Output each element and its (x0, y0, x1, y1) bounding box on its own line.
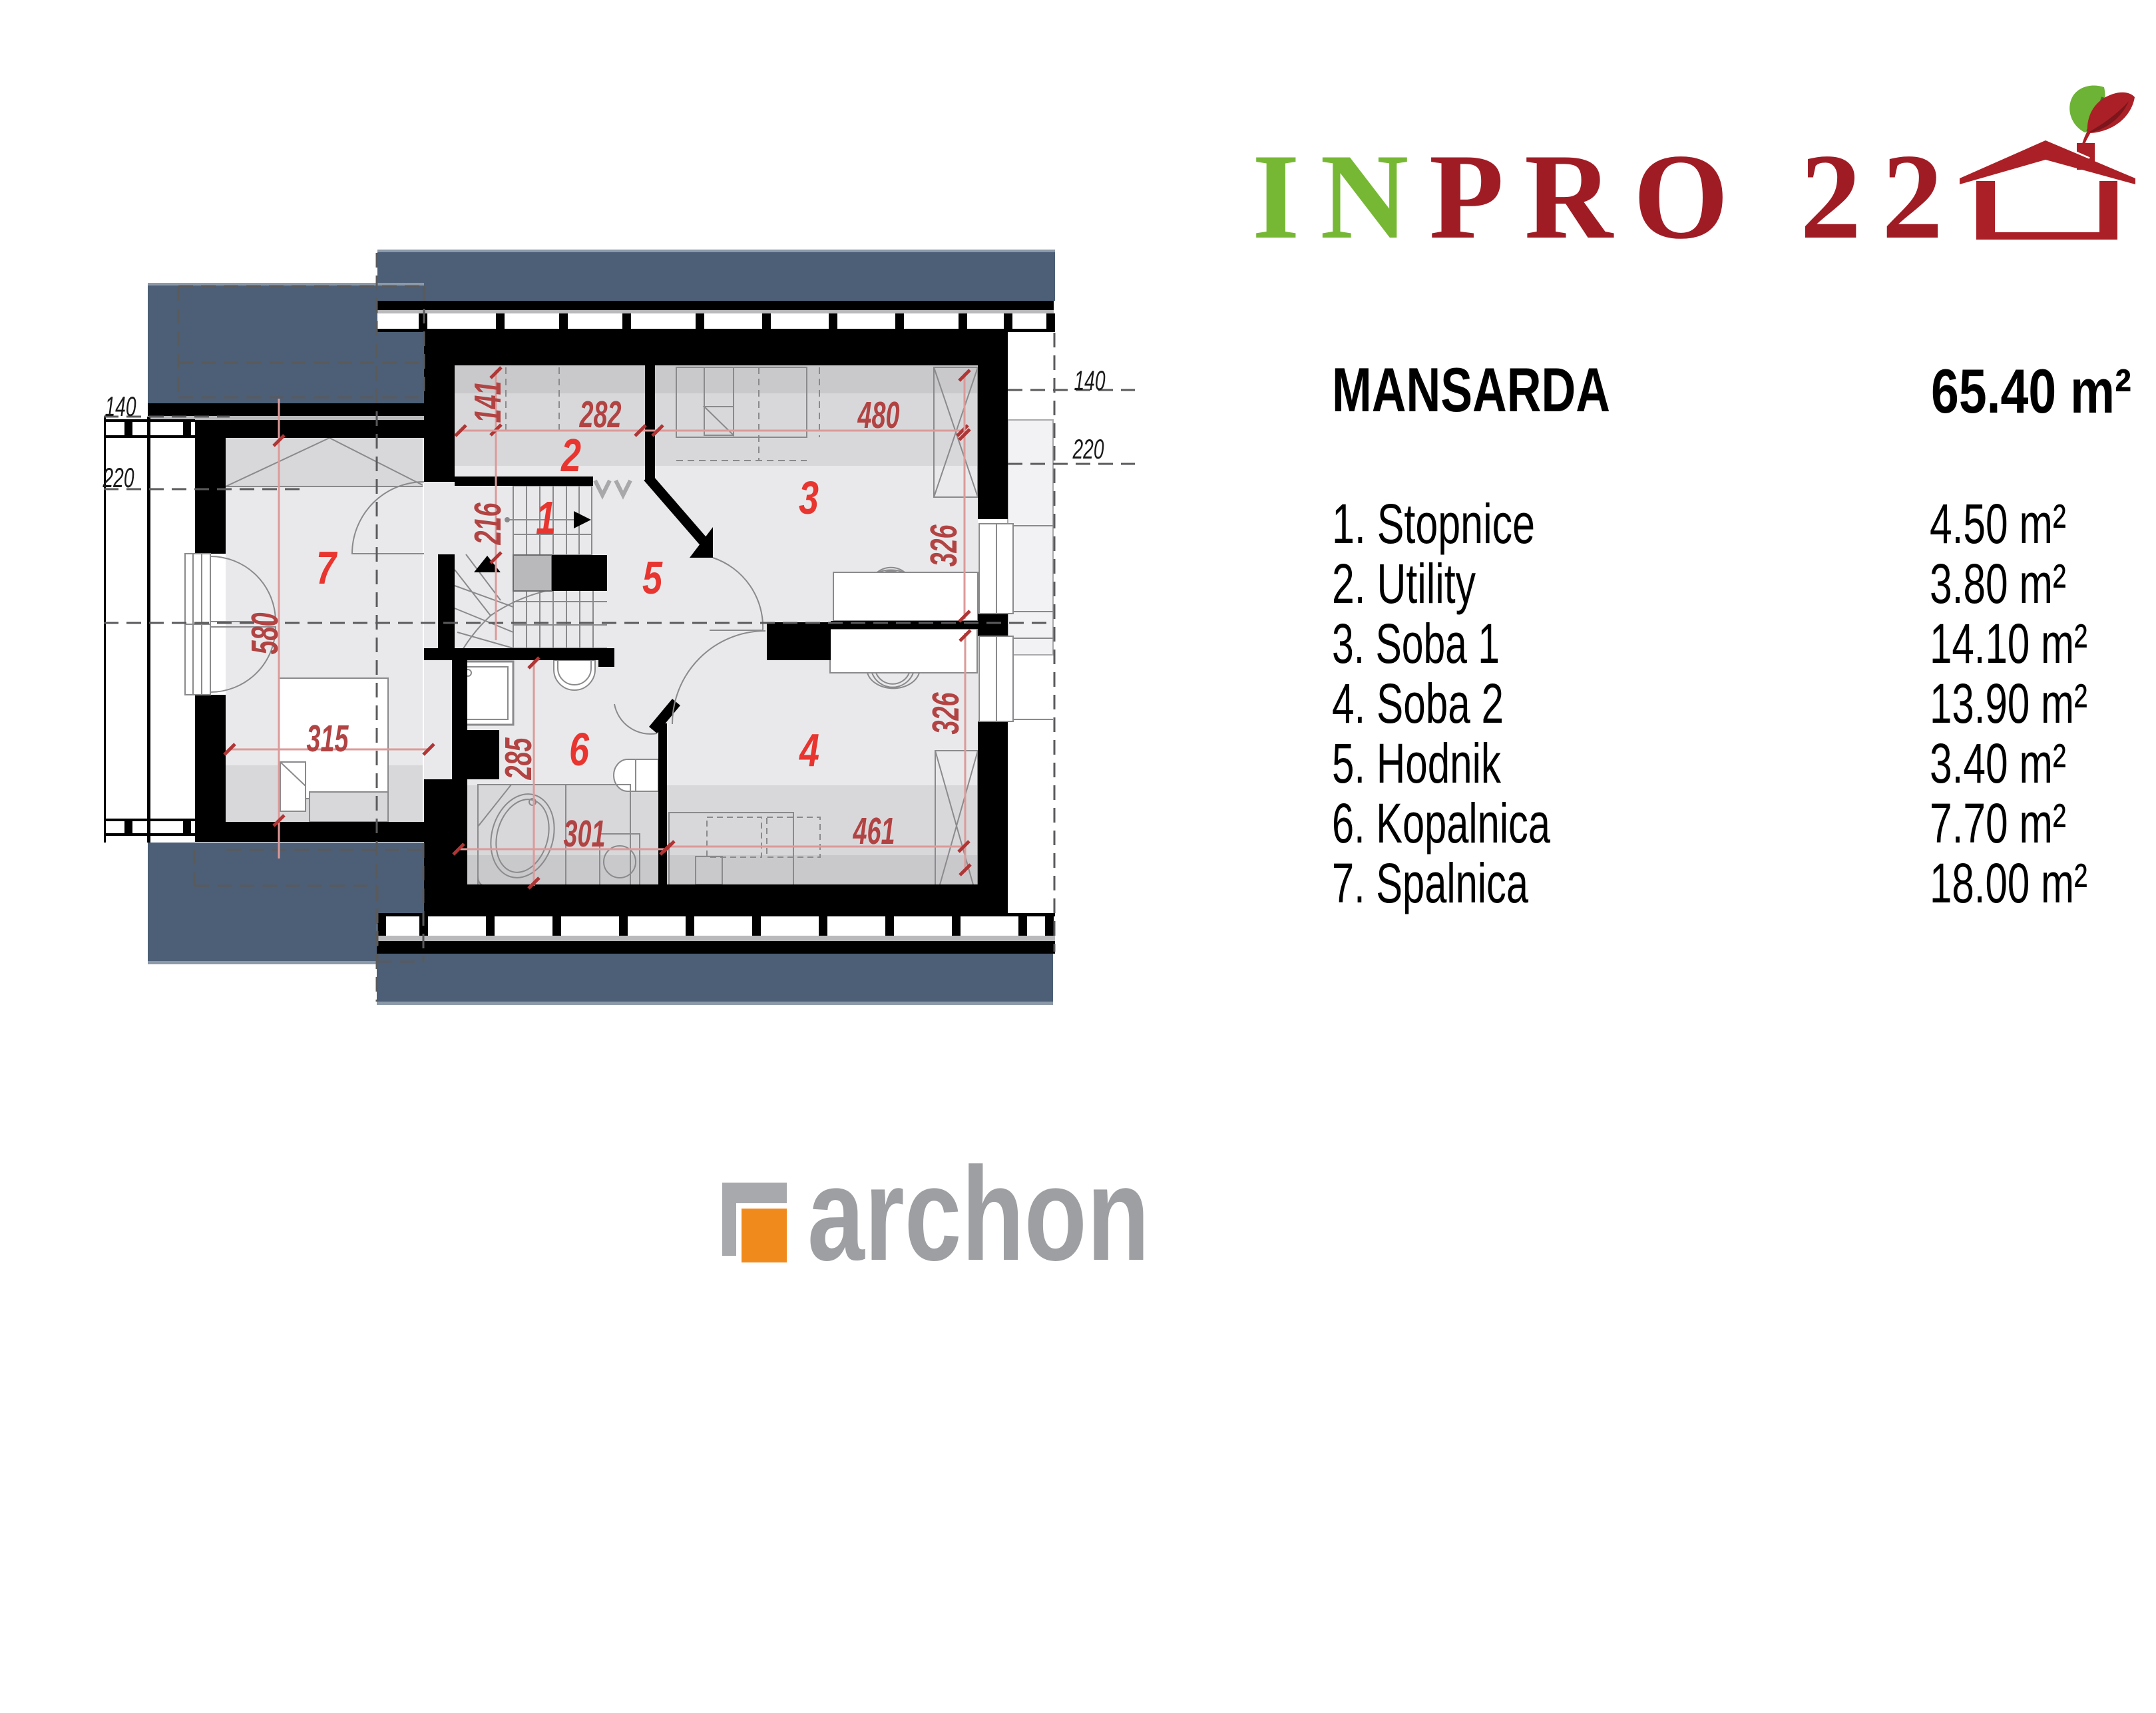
svg-text:580: 580 (244, 612, 286, 654)
svg-text:6. Kopalnica: 6. Kopalnica (1332, 792, 1550, 855)
svg-text:326: 326 (923, 524, 965, 566)
svg-text:3.80 m²: 3.80 m² (1930, 552, 2066, 615)
svg-text:301: 301 (564, 813, 606, 855)
svg-text:INPRO 22: INPRO 22 (1252, 128, 1943, 264)
svg-text:5: 5 (642, 552, 663, 604)
svg-text:480: 480 (857, 394, 900, 437)
svg-text:7.70 m²: 7.70 m² (1930, 792, 2066, 855)
svg-text:140: 140 (1074, 365, 1106, 396)
svg-text:141: 141 (467, 381, 509, 423)
svg-text:1. Stopnice: 1. Stopnice (1332, 492, 1535, 555)
svg-text:7: 7 (316, 542, 337, 594)
svg-text:216: 216 (467, 502, 509, 545)
svg-text:65.40 m²: 65.40 m² (1931, 356, 2131, 426)
svg-text:461: 461 (853, 810, 895, 853)
svg-text:4. Soba 2: 4. Soba 2 (1332, 672, 1504, 735)
svg-text:3: 3 (799, 472, 819, 524)
svg-text:326: 326 (925, 692, 967, 734)
svg-text:6: 6 (569, 723, 590, 775)
svg-text:315: 315 (307, 717, 349, 760)
svg-text:13.90 m²: 13.90 m² (1930, 672, 2087, 735)
svg-text:5. Hodnik: 5. Hodnik (1332, 732, 1502, 795)
svg-text:14.10 m²: 14.10 m² (1930, 612, 2087, 675)
svg-text:220: 220 (1072, 433, 1104, 465)
svg-text:MANSARDA: MANSARDA (1332, 355, 1610, 425)
svg-text:4.50 m²: 4.50 m² (1930, 492, 2066, 555)
svg-text:282: 282 (579, 393, 622, 436)
svg-text:140: 140 (105, 391, 136, 422)
svg-text:3.40 m²: 3.40 m² (1930, 732, 2066, 795)
svg-text:4: 4 (798, 724, 819, 776)
svg-text:285: 285 (497, 737, 540, 781)
svg-text:18.00 m²: 18.00 m² (1930, 852, 2087, 914)
svg-text:2: 2 (560, 429, 581, 481)
svg-text:archon: archon (807, 1140, 1150, 1288)
svg-text:220: 220 (103, 462, 134, 493)
svg-text:2. Utility: 2. Utility (1332, 552, 1476, 615)
svg-text:1: 1 (536, 492, 556, 544)
svg-text:3. Soba 1: 3. Soba 1 (1332, 612, 1500, 675)
svg-text:7. Spalnica: 7. Spalnica (1332, 852, 1528, 914)
